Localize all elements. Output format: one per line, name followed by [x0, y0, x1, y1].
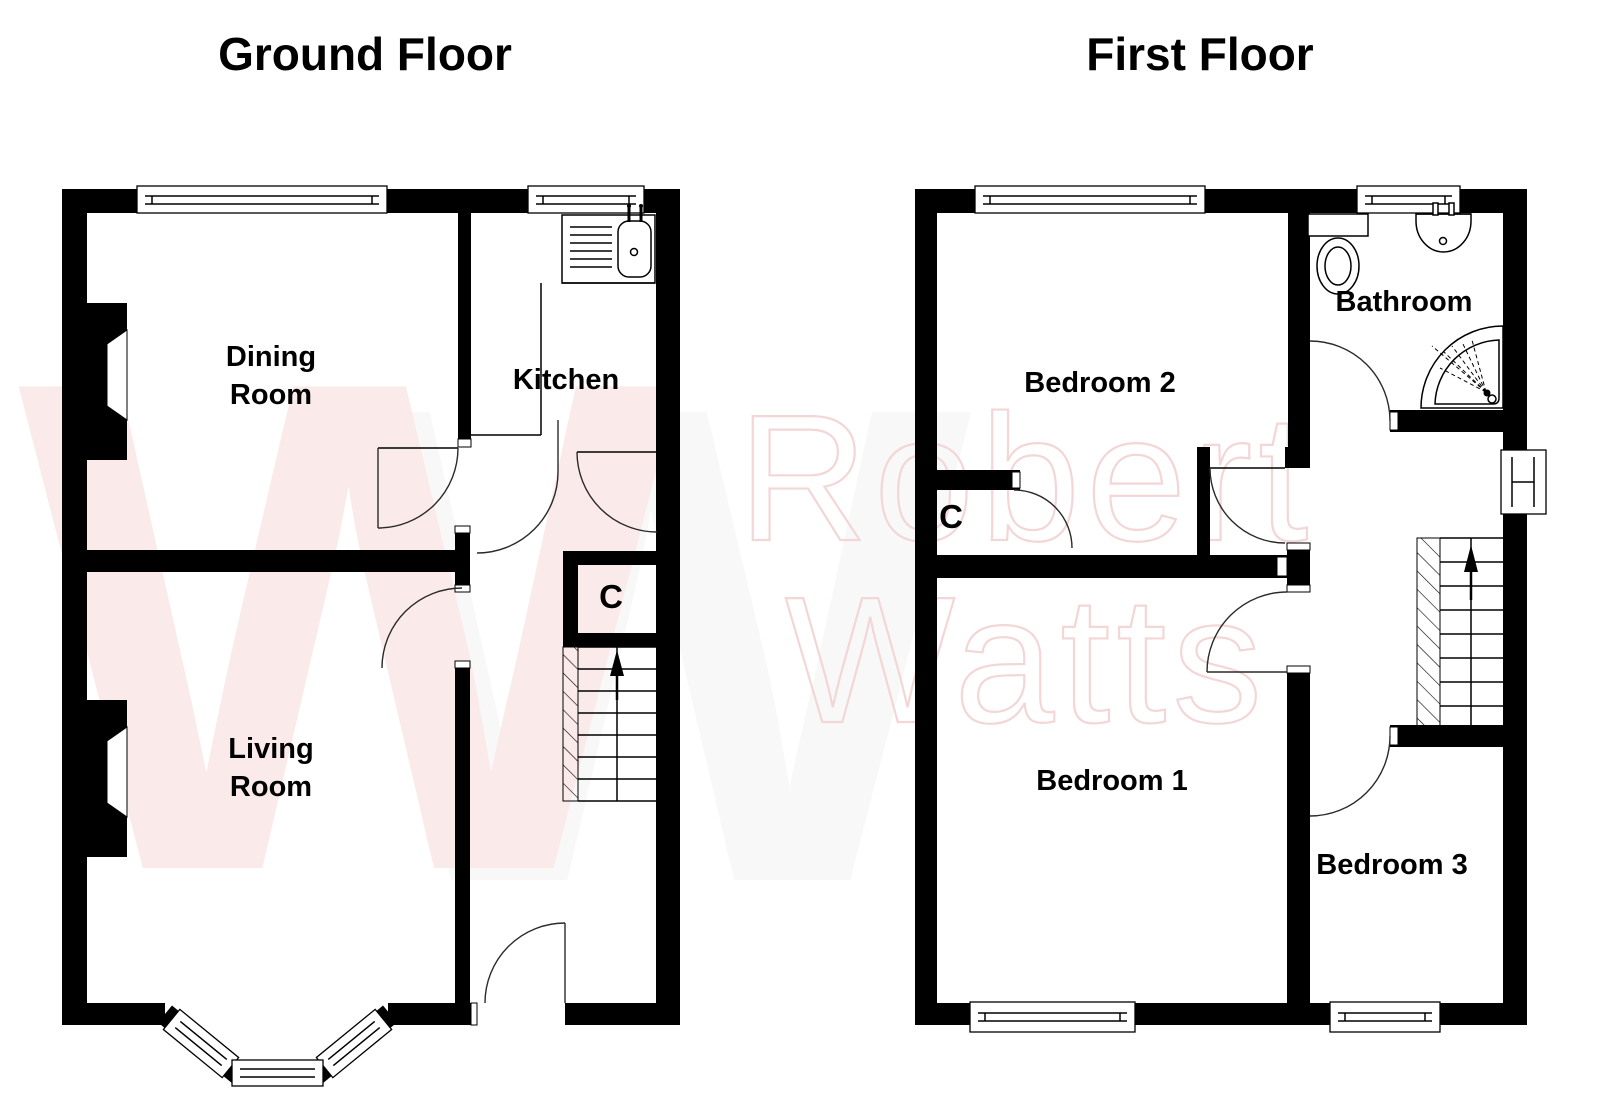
- kitchen-label: Kitchen: [513, 364, 619, 396]
- floorplan-page: W W Robert Watts: [0, 0, 1600, 1118]
- bedroom1-window: [970, 1002, 1135, 1032]
- bay-window-front-pane: [232, 1060, 323, 1086]
- toilet-icon: [1308, 214, 1368, 294]
- dining-room-label: Dining: [226, 341, 316, 373]
- first-stairs: [1417, 538, 1503, 727]
- watermark-robert: Robert: [738, 378, 1314, 579]
- bathroom-window: [1357, 186, 1460, 213]
- ground-floor-title: Ground Floor: [218, 28, 512, 80]
- bathroom-label: Bathroom: [1336, 286, 1473, 318]
- up-arrow-icon: [1464, 545, 1478, 600]
- watermark-watts: Watts: [785, 560, 1268, 761]
- bedroom2-label: Bedroom 2: [1024, 367, 1175, 399]
- bedroom3-label: Bedroom 3: [1316, 849, 1467, 881]
- bedroom2-window: [975, 186, 1205, 213]
- bedroom1-label: Bedroom 1: [1036, 765, 1187, 797]
- dining-chimney-breast: [87, 303, 127, 460]
- first-floor-title: First Floor: [1086, 28, 1314, 80]
- dining-room-label-2: Room: [230, 379, 312, 411]
- living-chimney-breast: [87, 700, 127, 857]
- ground-cupboard-label: C: [599, 578, 623, 615]
- floorplan-drawing: W W Robert Watts: [0, 0, 1600, 1118]
- kitchen-window: [528, 186, 644, 213]
- bedroom3-door: [1310, 736, 1390, 816]
- first-cupboard-label: C: [939, 498, 963, 535]
- living-room-label: Living: [228, 733, 313, 765]
- living-room-label-2: Room: [230, 771, 312, 803]
- corner-shower-icon: [1421, 326, 1503, 408]
- bedroom3-window: [1330, 1002, 1440, 1032]
- dining-window: [137, 186, 387, 213]
- stairs-window: [1501, 450, 1546, 514]
- bay-window-left-pane: [163, 1009, 238, 1077]
- bathroom-door: [1310, 341, 1390, 421]
